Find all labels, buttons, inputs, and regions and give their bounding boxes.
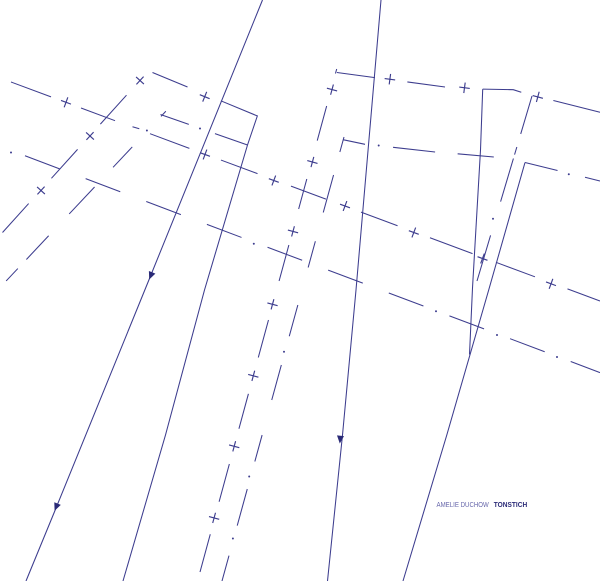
svg-text:AMELIE DUCHOW: AMELIE DUCHOW xyxy=(437,500,489,509)
svg-text:TONSTICH: TONSTICH xyxy=(494,500,527,509)
